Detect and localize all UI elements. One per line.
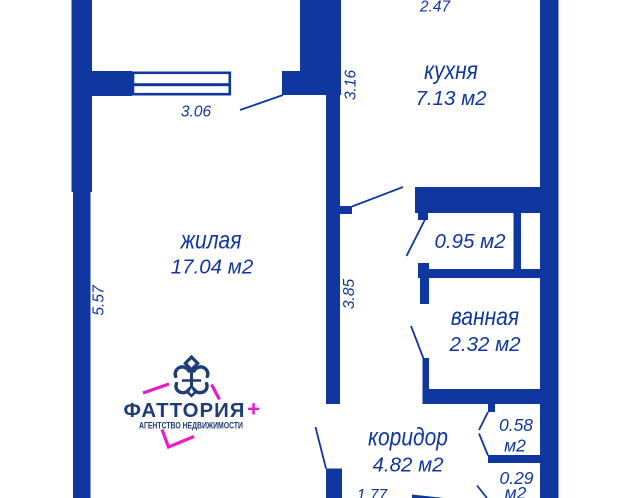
svg-text:3.16: 3.16 — [343, 70, 360, 101]
svg-text:жилая: жилая — [180, 226, 242, 254]
svg-text:1.77: 1.77 — [357, 487, 389, 498]
svg-text:3.85: 3.85 — [341, 279, 358, 310]
svg-text:ФАТТОРИЯ: ФАТТОРИЯ — [124, 399, 246, 422]
svg-text:2.32 м2: 2.32 м2 — [448, 333, 521, 356]
svg-text:ванная: ванная — [451, 302, 519, 330]
svg-text:17.04 м2: 17.04 м2 — [171, 256, 254, 279]
svg-text:+: + — [247, 397, 260, 422]
svg-text:0.58: 0.58 — [499, 415, 533, 435]
svg-text:м2: м2 — [505, 483, 527, 498]
svg-text:5.57: 5.57 — [91, 284, 108, 316]
svg-text:АГЕНТСТВО НЕДВИЖИМОСТИ: АГЕНТСТВО НЕДВИЖИМОСТИ — [139, 421, 243, 431]
svg-text:м2: м2 — [504, 436, 526, 456]
svg-text:коридор: коридор — [368, 423, 448, 451]
svg-text:кухня: кухня — [424, 56, 478, 84]
svg-text:2.47: 2.47 — [419, 0, 452, 16]
svg-text:4.82 м2: 4.82 м2 — [372, 454, 444, 477]
svg-text:0.95 м2: 0.95 м2 — [434, 230, 506, 253]
svg-text:3.06: 3.06 — [181, 104, 212, 121]
svg-text:7.13 м2: 7.13 м2 — [415, 87, 487, 110]
